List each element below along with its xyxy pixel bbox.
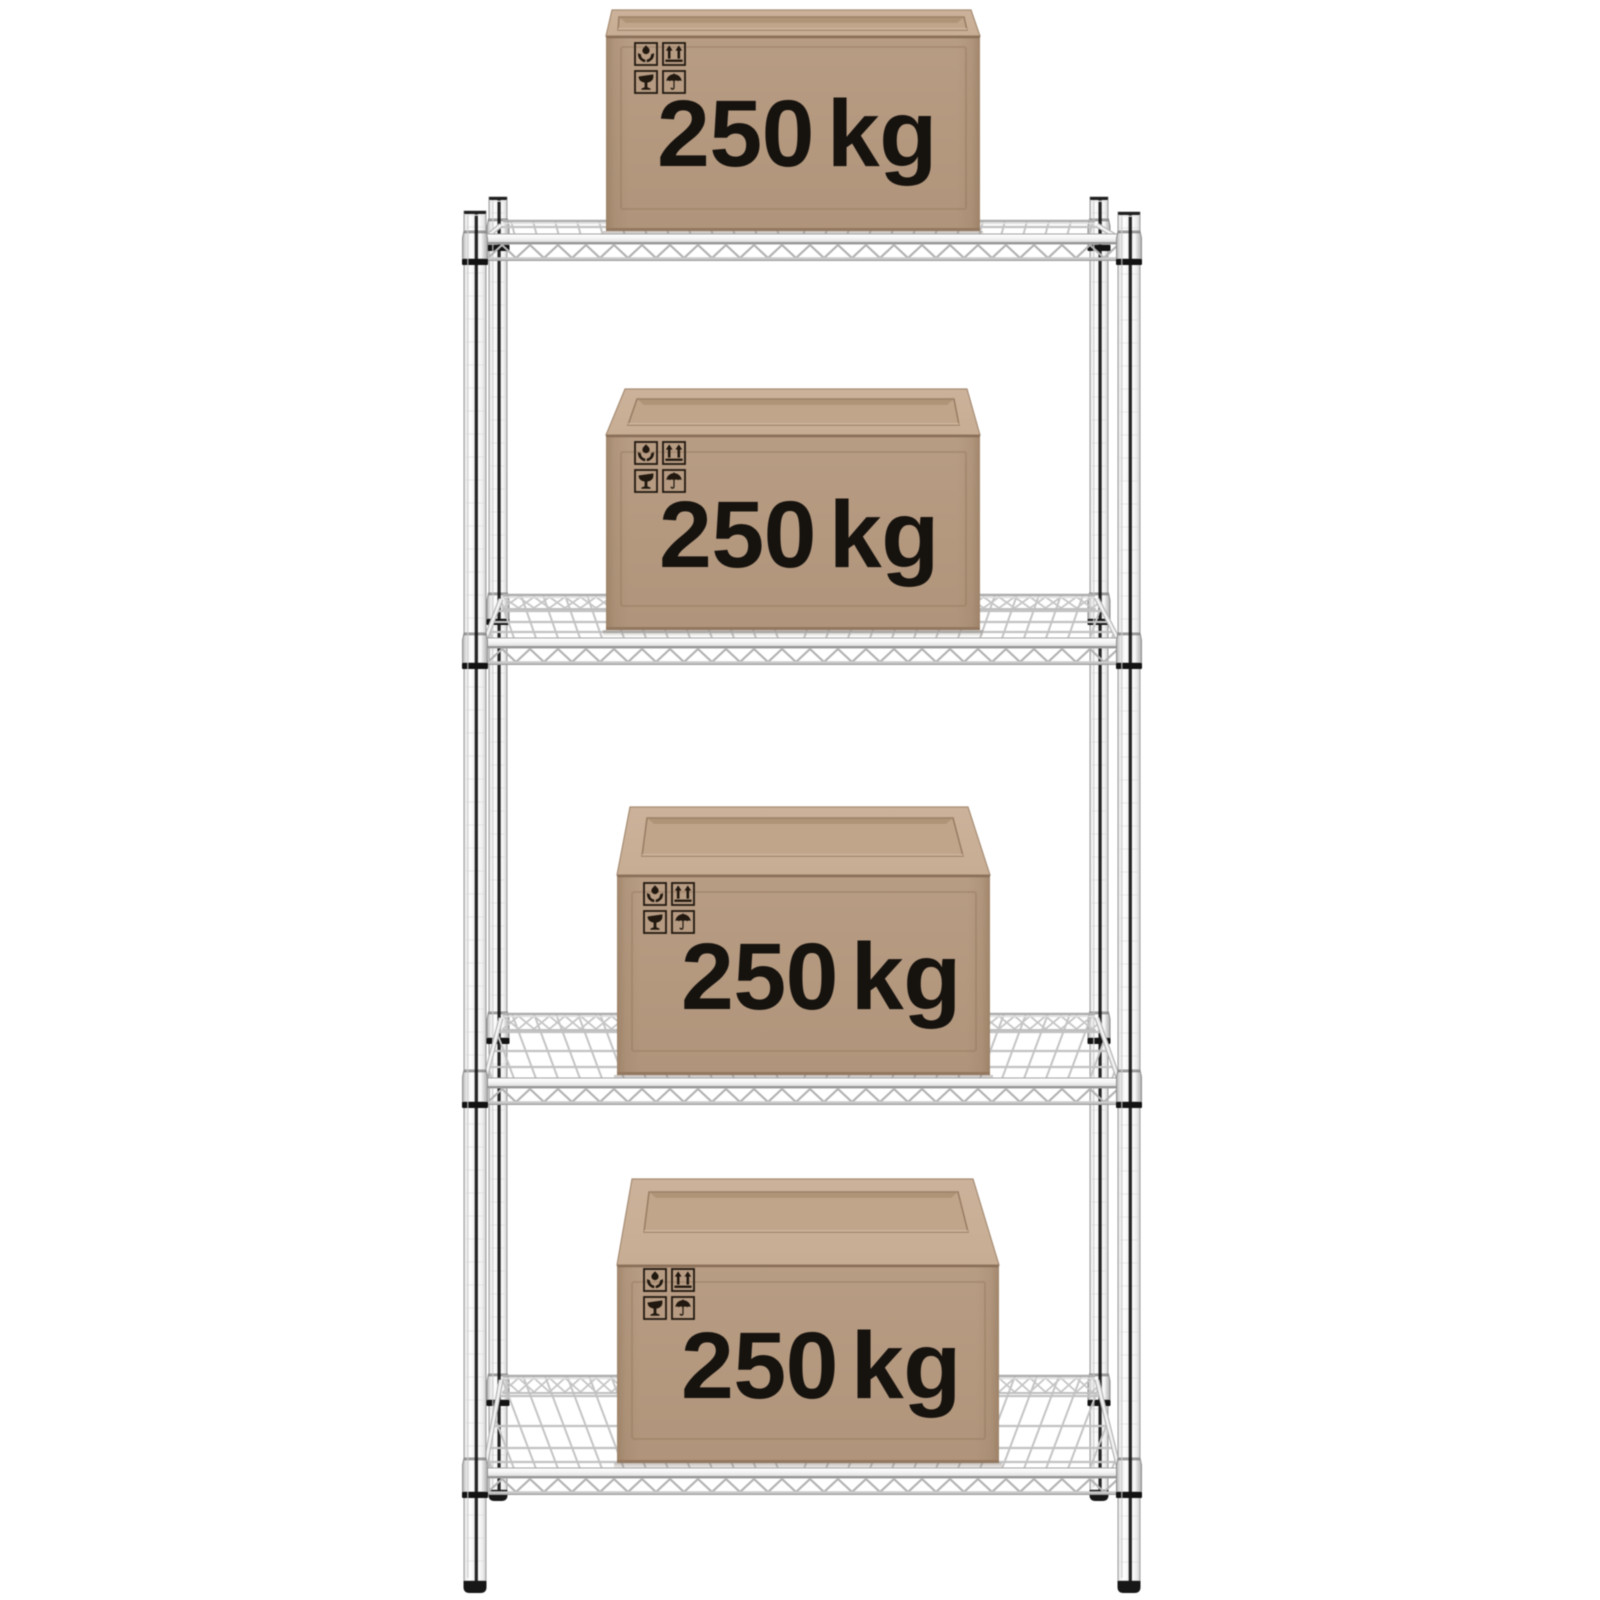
svg-text:250 kg: 250 kg	[659, 482, 939, 588]
svg-text:250 kg: 250 kg	[681, 924, 961, 1030]
svg-text:250 kg: 250 kg	[657, 81, 937, 187]
svg-text:250 kg: 250 kg	[681, 1313, 961, 1419]
